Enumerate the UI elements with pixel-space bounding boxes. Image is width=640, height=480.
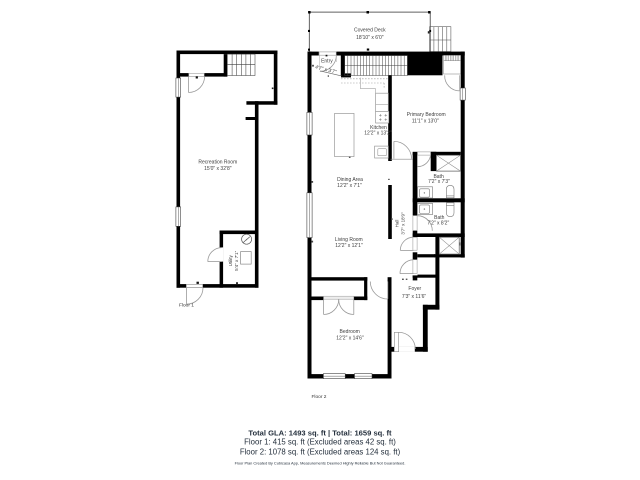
svg-text:18'10" x 6'0": 18'10" x 6'0" <box>356 35 384 41</box>
svg-text:15'0" x 32'8": 15'0" x 32'8" <box>204 166 232 172</box>
svg-text:12'2" x 14'6": 12'2" x 14'6" <box>336 335 364 341</box>
svg-text:Floor Plan Created By Cubicasa: Floor Plan Created By Cubicasa App, Meas… <box>235 461 406 466</box>
svg-text:3'7" x 18'9": 3'7" x 18'9" <box>401 212 406 235</box>
svg-text:Entry: Entry <box>321 59 333 65</box>
svg-text:12'2" x 7'1": 12'2" x 7'1" <box>337 183 362 189</box>
svg-text:7'3" x 11'6": 7'3" x 11'6" <box>402 294 426 300</box>
svg-text:12'2" x 12'1": 12'2" x 12'1" <box>335 243 363 249</box>
svg-text:Recreation Room: Recreation Room <box>198 160 237 166</box>
svg-text:Hall: Hall <box>395 220 400 228</box>
svg-text:Foyer: Foyer <box>408 286 421 292</box>
svg-text:7'2" x 8'2": 7'2" x 8'2" <box>427 221 449 227</box>
svg-text:Floor 1: 415 sq. ft (Excluded: Floor 1: 415 sq. ft (Excluded areas 42 s… <box>244 438 396 447</box>
svg-text:12'2" x 13'2": 12'2" x 13'2" <box>364 131 392 137</box>
svg-text:Bedroom: Bedroom <box>340 329 360 335</box>
svg-text:Covered Deck: Covered Deck <box>354 28 386 34</box>
svg-text:Utility: Utility <box>228 254 233 266</box>
svg-text:Primary Bedroom: Primary Bedroom <box>407 112 446 118</box>
svg-text:Floor 2: Floor 2 <box>312 394 327 400</box>
svg-text:Floor 2: 1078 sq. ft (Excluded: Floor 2: 1078 sq. ft (Excluded areas 124… <box>240 448 401 457</box>
svg-text:Total GLA: 1493 sq. ft | Total: Total GLA: 1493 sq. ft | Total: 1659 sq.… <box>248 428 392 437</box>
svg-text:Floor 1: Floor 1 <box>179 302 194 308</box>
svg-text:5'4" x 7'1": 5'4" x 7'1" <box>234 250 239 270</box>
svg-text:7'2" x 7'3": 7'2" x 7'3" <box>428 179 450 185</box>
svg-text:11'1" x 13'0": 11'1" x 13'0" <box>412 119 439 125</box>
